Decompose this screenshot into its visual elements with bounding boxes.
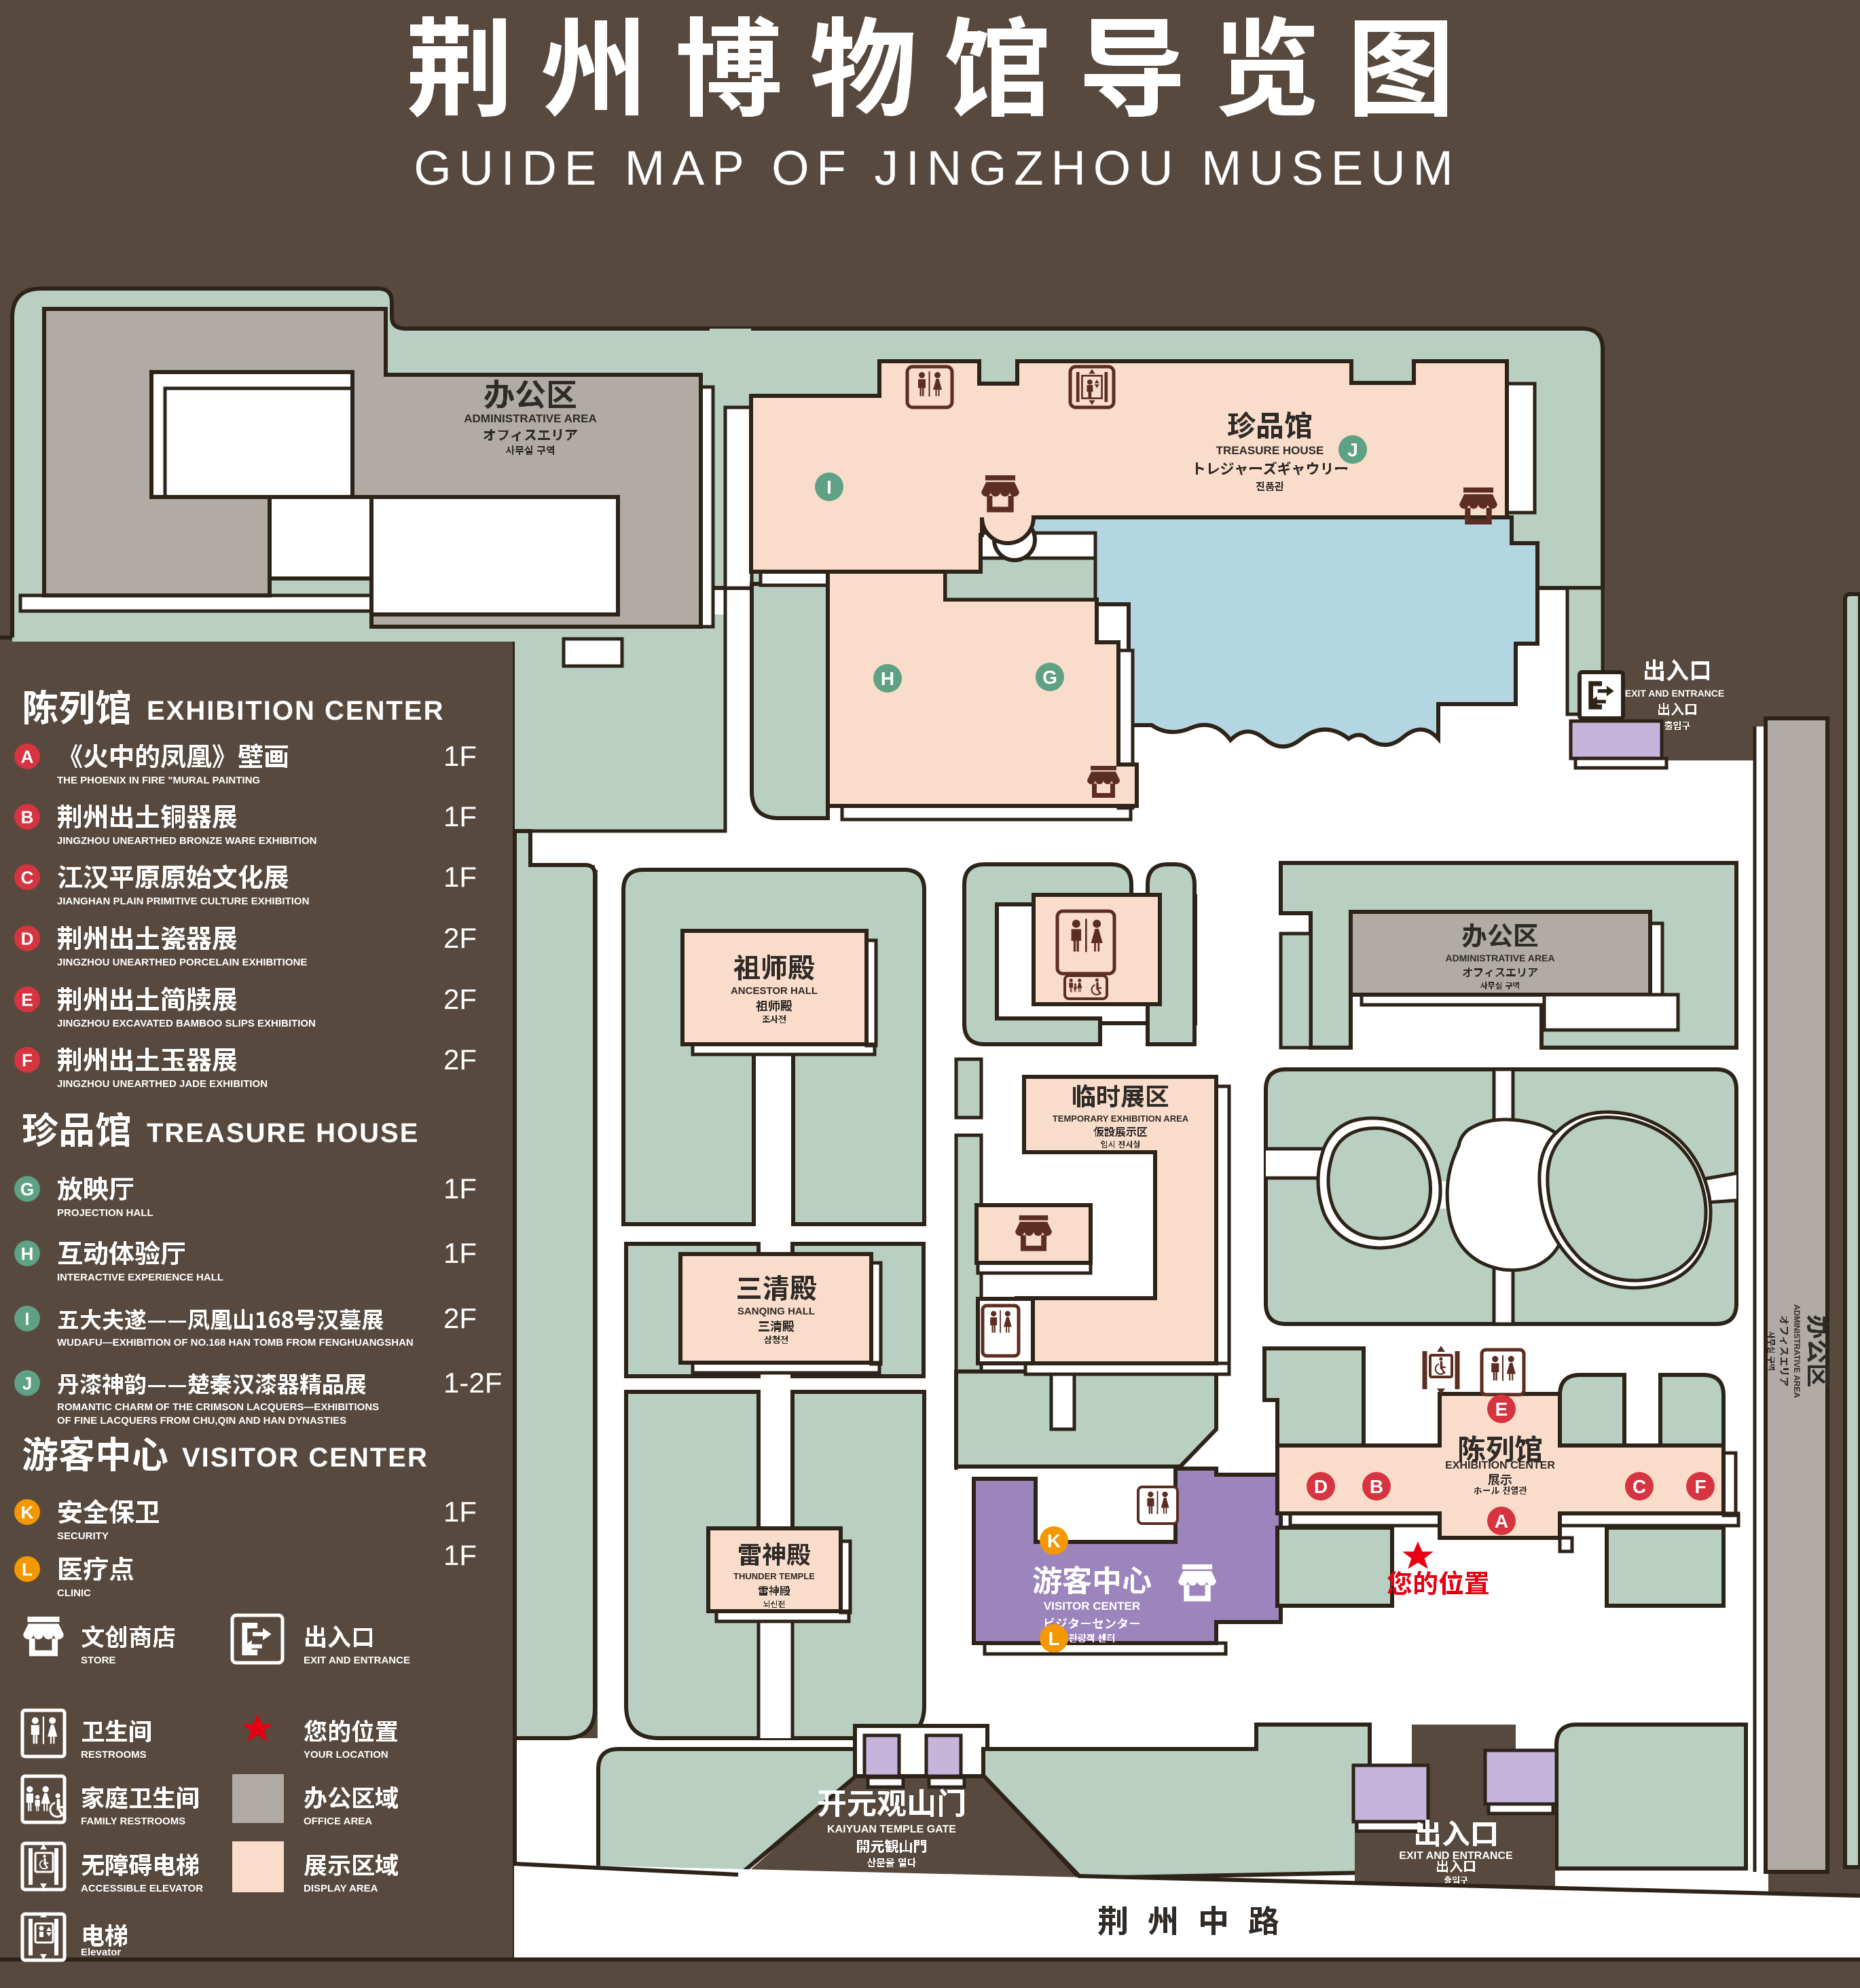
svg-text:2F: 2F xyxy=(443,922,477,954)
svg-text:THE PHOENIX IN FIRE "MURAL PAI: THE PHOENIX IN FIRE "MURAL PAINTING xyxy=(57,775,260,786)
svg-text:1F: 1F xyxy=(443,1496,477,1528)
svg-text:ACCESSIBLE ELEVATOR: ACCESSIBLE ELEVATOR xyxy=(81,1883,203,1894)
svg-text:INTERACTIVE EXPERIENCE HALL: INTERACTIVE EXPERIENCE HALL xyxy=(57,1272,223,1283)
svg-text:EXHIBITION CENTER: EXHIBITION CENTER xyxy=(1445,1460,1555,1471)
svg-text:L: L xyxy=(1048,1628,1059,1649)
svg-text:EXIT AND ENTRANCE: EXIT AND ENTRANCE xyxy=(1625,688,1725,699)
svg-text:J: J xyxy=(1347,439,1358,460)
svg-text:DISPLAY AREA: DISPLAY AREA xyxy=(304,1883,378,1894)
svg-text:L: L xyxy=(22,1559,33,1579)
svg-text:ADMINISTRATIVE AREA: ADMINISTRATIVE AREA xyxy=(1792,1304,1802,1398)
svg-text:I: I xyxy=(826,477,832,498)
svg-text:FAMILY RESTROOMS: FAMILY RESTROOMS xyxy=(81,1816,185,1827)
svg-text:GUIDE MAP OF JINGZHOU MUSEUM: GUIDE MAP OF JINGZHOU MUSEUM xyxy=(414,142,1460,196)
svg-text:1F: 1F xyxy=(443,740,477,772)
svg-text:G: G xyxy=(20,1179,34,1199)
svg-text:KAIYUAN TEMPLE GATE: KAIYUAN TEMPLE GATE xyxy=(827,1824,956,1835)
svg-text:A: A xyxy=(1495,1511,1508,1532)
svg-text:K: K xyxy=(21,1502,34,1522)
svg-text:VISITOR CENTER: VISITOR CENTER xyxy=(1044,1600,1140,1613)
svg-text:EXIT AND ENTRANCE: EXIT AND ENTRANCE xyxy=(304,1655,410,1666)
svg-text:PROJECTION HALL: PROJECTION HALL xyxy=(57,1207,153,1219)
svg-text:I: I xyxy=(24,1308,29,1329)
svg-text:JIANGHAN PLAIN PRIMITIVE CULTU: JIANGHAN PLAIN PRIMITIVE CULTURE EXHIBIT… xyxy=(57,896,309,907)
svg-text:CLINIC: CLINIC xyxy=(57,1587,91,1599)
svg-text:1F: 1F xyxy=(443,861,477,893)
svg-text:SECURITY: SECURITY xyxy=(57,1530,109,1542)
svg-text:1F: 1F xyxy=(443,1237,477,1269)
svg-text:JINGZHOU EXCAVATED BAMBOO SLIP: JINGZHOU EXCAVATED BAMBOO SLIPS EXHIBITI… xyxy=(57,1018,316,1029)
svg-text:J: J xyxy=(22,1373,32,1393)
svg-text:TREASURE HOUSE: TREASURE HOUSE xyxy=(1216,444,1324,457)
svg-text:1-2F: 1-2F xyxy=(443,1367,502,1399)
svg-text:ADMINISTRATIVE AREA: ADMINISTRATIVE AREA xyxy=(1446,953,1555,963)
svg-text:TREASURE HOUSE: TREASURE HOUSE xyxy=(147,1118,419,1148)
svg-text:F: F xyxy=(1694,1476,1706,1497)
svg-text:RESTROOMS: RESTROOMS xyxy=(81,1749,147,1761)
svg-text:ADMINISTRATIVE AREA: ADMINISTRATIVE AREA xyxy=(464,412,597,425)
svg-text:OF FINE LACQUERS FROM CHU,QIN: OF FINE LACQUERS FROM CHU,QIN AND HAN DY… xyxy=(57,1415,346,1426)
svg-text:2F: 2F xyxy=(443,1044,477,1075)
svg-text:JINGZHOU UNEARTHED JADE EXHIBI: JINGZHOU UNEARTHED JADE EXHIBITION xyxy=(57,1078,268,1090)
svg-text:K: K xyxy=(1047,1530,1061,1551)
svg-text:B: B xyxy=(1370,1476,1383,1497)
svg-text:OFFICE AREA: OFFICE AREA xyxy=(304,1816,372,1827)
svg-text:TEMPORARY EXHIBITION AREA: TEMPORARY EXHIBITION AREA xyxy=(1053,1113,1189,1124)
svg-text:THUNDER TEMPLE: THUNDER TEMPLE xyxy=(733,1571,815,1581)
svg-text:A: A xyxy=(21,746,34,767)
svg-text:YOUR LOCATION: YOUR LOCATION xyxy=(304,1749,388,1761)
svg-text:C: C xyxy=(1633,1476,1646,1497)
svg-text:D: D xyxy=(21,928,34,949)
svg-text:E: E xyxy=(1495,1399,1508,1420)
svg-text:VISITOR CENTER: VISITOR CENTER xyxy=(182,1443,428,1473)
svg-text:1F: 1F xyxy=(443,1539,477,1571)
svg-text:B: B xyxy=(21,807,34,827)
svg-text:1F: 1F xyxy=(443,1173,477,1204)
svg-text:EXIT AND ENTRANCE: EXIT AND ENTRANCE xyxy=(1399,1850,1513,1862)
svg-text:2F: 2F xyxy=(443,983,477,1015)
svg-text:JINGZHOU UNEARTHED BRONZE WARE: JINGZHOU UNEARTHED BRONZE WARE EXHIBITIO… xyxy=(57,835,317,847)
svg-text:ANCESTOR HALL: ANCESTOR HALL xyxy=(731,985,818,997)
svg-text:Elevator: Elevator xyxy=(81,1947,121,1958)
svg-text:SANQING HALL: SANQING HALL xyxy=(737,1306,815,1317)
svg-text:JINGZHOU UNEARTHED PORCELAIN E: JINGZHOU UNEARTHED PORCELAIN EXHIBITIONE xyxy=(57,957,307,968)
svg-text:H: H xyxy=(21,1243,34,1264)
svg-text:F: F xyxy=(22,1050,33,1070)
svg-text:C: C xyxy=(21,867,34,887)
svg-text:2F: 2F xyxy=(443,1302,477,1334)
svg-text:WUDAFU—EXHIBITION OF NO.168 HA: WUDAFU—EXHIBITION OF NO.168 HAN TOMB FRO… xyxy=(57,1337,414,1348)
svg-text:G: G xyxy=(1042,667,1057,688)
svg-text:EXHIBITION CENTER: EXHIBITION CENTER xyxy=(147,696,444,726)
svg-text:H: H xyxy=(881,668,894,689)
svg-text:1F: 1F xyxy=(443,800,477,832)
svg-text:D: D xyxy=(1314,1476,1328,1497)
svg-text:ROMANTIC CHARM OF THE CRIMSON: ROMANTIC CHARM OF THE CRIMSON LACQUERS—E… xyxy=(57,1401,379,1413)
svg-text:STORE: STORE xyxy=(81,1655,115,1666)
svg-text:E: E xyxy=(21,989,33,1010)
